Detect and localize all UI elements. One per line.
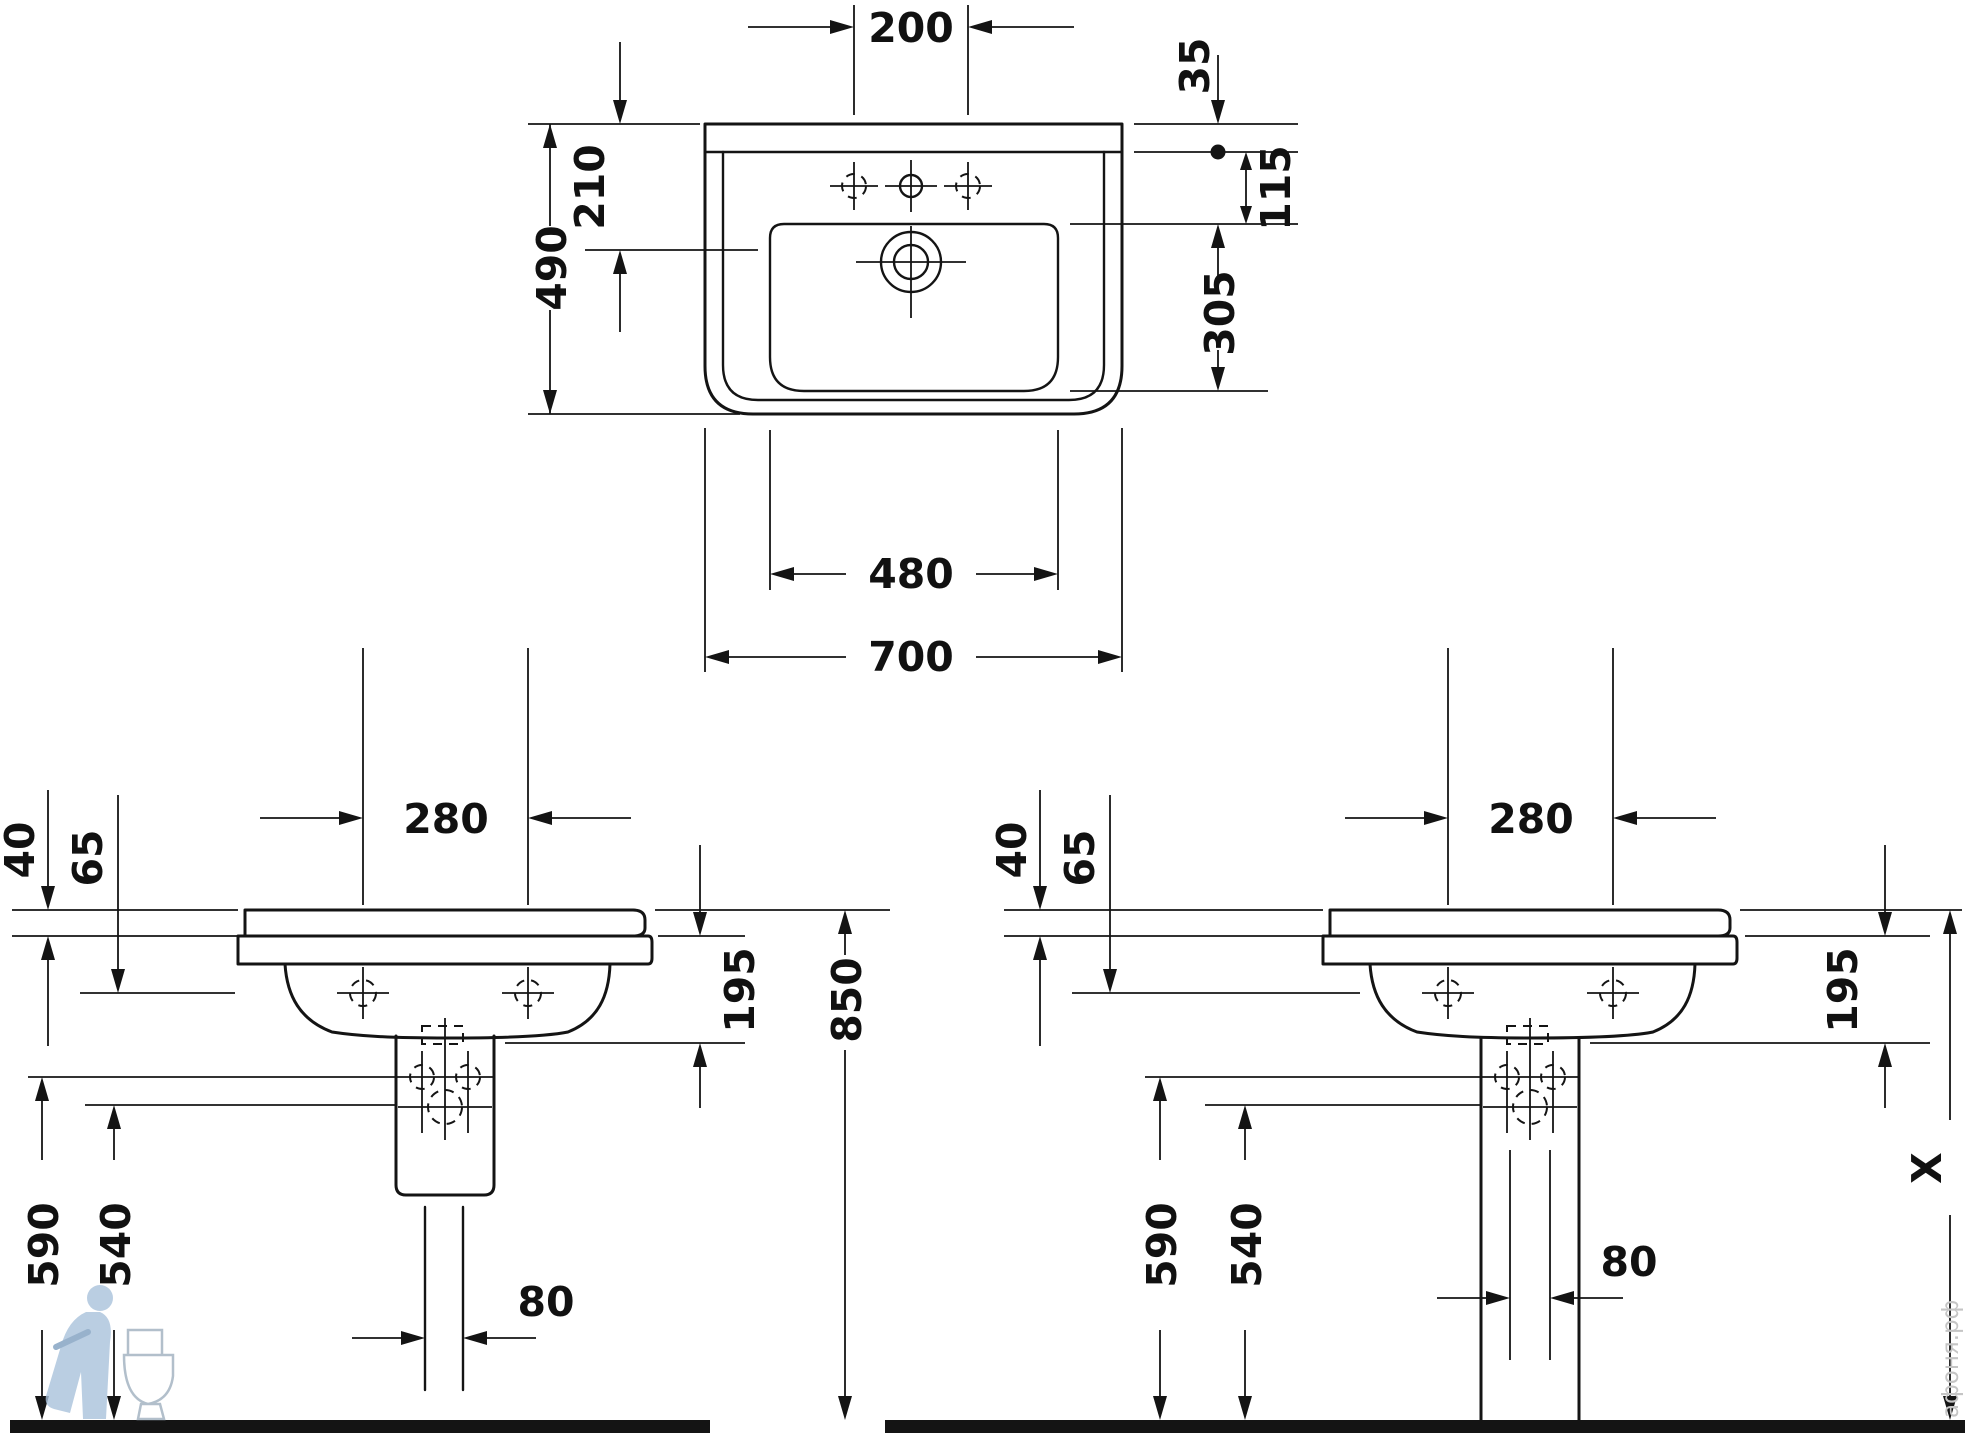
arrowhead	[838, 910, 852, 934]
basin-body-outline	[1370, 964, 1695, 1038]
arrowhead	[1424, 811, 1448, 825]
faucet-hole-right-icon	[944, 162, 992, 210]
dim-850: 850	[655, 910, 890, 1420]
arrowhead	[1103, 969, 1117, 993]
arrowhead	[1878, 1043, 1892, 1067]
dim-210: 210	[566, 42, 758, 332]
fixing-point-dot	[1211, 145, 1226, 160]
fixing-hole-right-icon	[1587, 967, 1639, 1019]
plan-view: 200 490 210 35	[528, 4, 1300, 681]
faucet-hole-cross	[944, 162, 992, 210]
dim-540: 540	[1205, 1105, 1481, 1420]
arrowhead	[1033, 886, 1047, 910]
arrowhead	[1153, 1077, 1167, 1101]
basin-outer-outline	[705, 124, 1122, 414]
dim-115: 115	[1240, 145, 1300, 231]
arrowhead	[613, 100, 627, 124]
dim-label-35: 35	[1171, 37, 1219, 94]
dim-label-590: 590	[1138, 1202, 1186, 1288]
dim-label-195: 195	[1819, 947, 1867, 1033]
arrowhead	[543, 124, 557, 148]
dim-label-280: 280	[403, 795, 489, 843]
extension-line	[505, 936, 745, 1043]
dim-label-200: 200	[868, 4, 954, 52]
dim-label-65: 65	[1056, 829, 1104, 886]
slab-band-outline	[238, 936, 652, 964]
waste-outlet-dashed-rect	[1507, 1026, 1548, 1044]
arrowhead	[1943, 910, 1957, 934]
arrowhead	[705, 650, 729, 664]
arrowhead	[613, 250, 627, 274]
faucet-hole-cross	[885, 160, 937, 212]
arrowhead	[693, 1043, 707, 1067]
plumber-toilet	[124, 1330, 173, 1419]
floor-line	[885, 1420, 1965, 1433]
arrowhead	[1486, 1291, 1510, 1305]
dim-label-X: X	[1903, 1152, 1951, 1184]
dim-label-210: 210	[566, 144, 614, 230]
dim-label-115: 115	[1252, 145, 1300, 231]
basin-inner-wall-outline	[723, 152, 1104, 400]
arrowhead	[1153, 1396, 1167, 1420]
slab-band-outline	[1323, 936, 1737, 964]
arrowhead	[968, 20, 992, 34]
arrowhead	[1878, 912, 1892, 936]
fixing-hole-cross	[1422, 967, 1474, 1019]
arrowhead	[770, 567, 794, 581]
waste-outlet-dashed-rect	[422, 1026, 463, 1044]
fixing-hole-cross	[1587, 967, 1639, 1019]
dim-65: 65	[1056, 795, 1360, 993]
side-view-siphon-cover: 280 40 65 195	[0, 648, 890, 1433]
dim-80: 80	[1437, 1238, 1658, 1305]
arrowhead	[1238, 1105, 1252, 1129]
arrowhead	[339, 811, 363, 825]
arrowhead	[693, 912, 707, 936]
dim-65: 65	[64, 795, 235, 993]
dim-280: 280	[1345, 648, 1716, 905]
arrowhead	[1550, 1291, 1574, 1305]
fixing-hole-left-icon	[337, 967, 389, 1019]
washbasin-technical-drawing: 200 490 210 35	[0, 0, 1965, 1437]
dim-label-195: 195	[716, 947, 764, 1033]
arrowhead	[830, 20, 854, 34]
dim-label-540: 540	[92, 1202, 140, 1288]
drain-pipe-lines	[425, 1207, 463, 1390]
dim-label-540: 540	[1223, 1202, 1271, 1288]
faucet-hole-center-icon	[885, 160, 937, 212]
fixing-hole-right-icon	[502, 967, 554, 1019]
arrowhead	[1240, 152, 1252, 170]
arrowhead	[107, 1105, 121, 1129]
arrowhead	[111, 969, 125, 993]
arrowhead	[528, 811, 552, 825]
fixing-hole-cross	[502, 967, 554, 1019]
arrowhead	[1613, 811, 1637, 825]
dim-480: 480	[770, 430, 1058, 598]
extension-line	[1448, 648, 1613, 905]
drain-icon	[856, 226, 966, 318]
extension-line	[1590, 936, 1930, 1043]
extension-line	[1004, 910, 1323, 936]
fixing-hole-left-icon	[1422, 967, 1474, 1019]
dim-label-40: 40	[988, 821, 1036, 878]
dim-label-850: 850	[823, 957, 871, 1043]
dim-label-280: 280	[1488, 795, 1574, 843]
arrowhead	[1211, 100, 1225, 124]
arrowhead	[1034, 567, 1058, 581]
basin-bowl-outline	[770, 224, 1058, 391]
arrowhead	[1098, 650, 1122, 664]
dim-590: 590	[1138, 1077, 1481, 1420]
dim-40: 40	[988, 790, 1323, 1046]
dim-195: 195	[505, 845, 764, 1108]
plumber-body	[46, 1312, 111, 1419]
dim-label-65: 65	[64, 829, 112, 886]
dim-label-40: 40	[0, 821, 44, 878]
arrowhead	[1240, 206, 1252, 224]
arrowhead	[838, 1396, 852, 1420]
arrowhead	[1211, 367, 1225, 391]
extension-line	[363, 648, 528, 905]
drain-cross	[856, 226, 966, 318]
arrowhead	[1033, 936, 1047, 960]
floor-line	[10, 1420, 710, 1433]
dim-200: 200	[748, 4, 1074, 115]
dim-label-490: 490	[528, 225, 576, 311]
dim-label-80: 80	[517, 1278, 574, 1326]
watermark-site-text: афоня.рф	[1938, 1300, 1964, 1418]
drain-pipe-lines	[1510, 1150, 1550, 1360]
dim-40: 40	[0, 790, 238, 1046]
arrowhead	[543, 390, 557, 414]
dim-label-80: 80	[1600, 1238, 1657, 1286]
dim-label-700: 700	[868, 633, 954, 681]
basin-body-outline	[285, 964, 610, 1038]
faucet-hole-cross	[830, 162, 878, 210]
arrowhead	[401, 1331, 425, 1345]
dim-195: 195	[1590, 845, 1930, 1108]
fixing-hole-cross	[337, 967, 389, 1019]
dim-label-480: 480	[868, 550, 954, 598]
arrowhead	[41, 886, 55, 910]
arrowhead	[35, 1077, 49, 1101]
extension-line	[12, 910, 238, 936]
technical-drawing-page: 200 490 210 35	[0, 0, 1965, 1437]
slab-top-outline	[245, 910, 645, 936]
arrowhead	[1211, 224, 1225, 248]
plumber-head	[87, 1285, 113, 1311]
slab-top-outline	[1330, 910, 1730, 936]
dim-280: 280	[260, 648, 631, 905]
dim-490: 490	[528, 124, 740, 414]
arrowhead	[41, 936, 55, 960]
dim-label-305: 305	[1196, 270, 1244, 356]
dim-label-590: 590	[20, 1202, 68, 1288]
arrowhead	[107, 1396, 121, 1420]
side-view-full-pedestal: 280 40 65 195	[885, 648, 1965, 1433]
faucet-hole-left-icon	[830, 162, 878, 210]
dim-35: 35	[1134, 37, 1298, 159]
arrowhead	[1238, 1396, 1252, 1420]
arrowhead	[463, 1331, 487, 1345]
